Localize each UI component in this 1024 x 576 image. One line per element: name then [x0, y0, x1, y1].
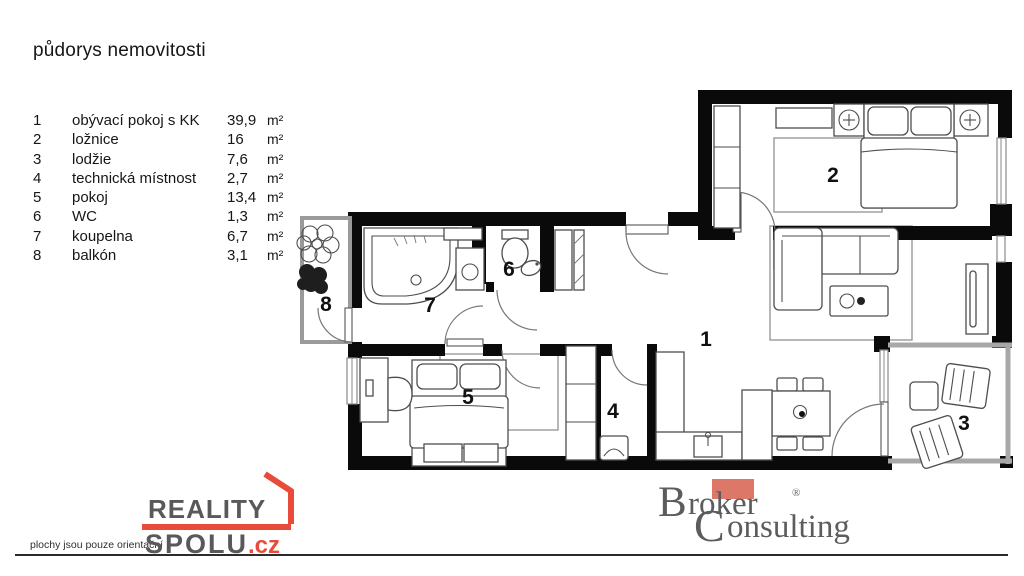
- wardrobe-icon: [566, 346, 596, 460]
- room4-furniture: [600, 436, 628, 460]
- area-unit: m²: [267, 247, 297, 263]
- coffee-table-icon: [830, 286, 888, 316]
- room-name: lodžie: [72, 151, 227, 168]
- dining-table-icon: [772, 378, 830, 450]
- room-label-3: 3: [958, 412, 970, 435]
- room-number: 4: [33, 170, 72, 187]
- room-name: koupelna: [72, 228, 227, 245]
- registered-mark: ®: [792, 487, 800, 499]
- room-label-2: 2: [827, 164, 839, 187]
- room5-door: [502, 350, 540, 388]
- armchair-icon: [941, 363, 990, 409]
- room-area: 2,7: [227, 170, 267, 187]
- bathroom-door: [447, 339, 483, 346]
- room-name: obývací pokoj s KK: [72, 112, 227, 129]
- plant-dark-icon: [297, 264, 328, 294]
- room-name: ložnice: [72, 131, 227, 148]
- entry-door: [626, 225, 668, 234]
- window: [997, 236, 1005, 262]
- room-label-4: 4: [607, 400, 619, 423]
- side-table-icon: [910, 382, 938, 410]
- room-number: 5: [33, 189, 72, 206]
- room-label-6: 6: [503, 258, 515, 281]
- room-number: 2: [33, 131, 72, 148]
- room-area: 13,4: [227, 189, 267, 206]
- room-area: 39,9: [227, 112, 267, 129]
- broker-initial: B: [658, 481, 687, 524]
- tv-stand-icon: [966, 264, 988, 334]
- consulting-initial: C: [694, 503, 725, 549]
- room-area: 16: [227, 131, 267, 148]
- room-number: 6: [33, 208, 72, 225]
- room-number: 8: [33, 247, 72, 264]
- balcony-door: [345, 308, 352, 342]
- room-label-1: 1: [700, 328, 712, 351]
- loggia-furniture: [910, 363, 991, 469]
- room5-furniture: [360, 346, 596, 466]
- area-unit: m²: [267, 189, 297, 205]
- room-name: technická místnost: [72, 170, 227, 187]
- bathroom-fixtures: [364, 228, 484, 304]
- area-unit: m²: [267, 208, 297, 224]
- kitchen-counter-icon: [656, 352, 772, 460]
- room-label-8: 8: [320, 293, 332, 316]
- legend-row: 3 lodžie 7,6 m²: [33, 151, 297, 170]
- washing-machine-icon: [456, 248, 484, 290]
- legend-row: 1 obývací pokoj s KK 39,9 m²: [33, 112, 297, 131]
- room-label-7: 7: [424, 294, 436, 317]
- room4-door: [612, 350, 647, 385]
- broker-consulting-logo: B roker ® C onsulting: [650, 475, 1010, 560]
- loggia-door: [881, 402, 888, 456]
- logo-word-spolu: SPOLU.cz: [145, 529, 280, 560]
- closet-icon: [555, 230, 572, 290]
- area-unit: m²: [267, 112, 297, 128]
- shelf-icon: [444, 228, 482, 240]
- kitchen-island-icon: [742, 390, 772, 460]
- legend-row: 8 balkón 3,1 m²: [33, 247, 297, 266]
- chair-icon: [600, 436, 628, 460]
- room-area: 7,6: [227, 151, 267, 168]
- legend-row: 5 pokoj 13,4 m²: [33, 189, 297, 208]
- logo-word-reality: REALITY: [148, 494, 266, 525]
- room-number: 3: [33, 151, 72, 168]
- desk-chair-icon: [388, 377, 412, 410]
- room-name: balkón: [72, 247, 227, 264]
- bed-icon: [861, 104, 957, 208]
- bed-icon: [410, 360, 508, 466]
- room-area: 3,1: [227, 247, 267, 264]
- area-unit: m²: [267, 170, 297, 186]
- logo-tld: .cz: [248, 532, 280, 559]
- page-title: půdorys nemovitosti: [33, 40, 206, 62]
- wardrobe-icon: [714, 106, 740, 228]
- room-name: pokoj: [72, 189, 227, 206]
- dresser-icon: [776, 108, 832, 128]
- room-label-5: 5: [462, 386, 474, 409]
- area-unit: m²: [267, 228, 297, 244]
- area-unit: m²: [267, 151, 297, 167]
- legend: 1 obývací pokoj s KK 39,9 m² 2 ložnice 1…: [33, 112, 297, 266]
- desk-icon: [360, 358, 412, 422]
- legend-row: 7 koupelna 6,7 m²: [33, 228, 297, 247]
- room-area: 1,3: [227, 208, 267, 225]
- bedroom-furniture: [714, 104, 988, 228]
- room-number: 1: [33, 112, 72, 129]
- legend-row: 6 WC 1,3 m²: [33, 208, 297, 227]
- room-area: 6,7: [227, 228, 267, 245]
- area-unit: m²: [267, 131, 297, 147]
- legend-row: 4 technická místnost 2,7 m²: [33, 170, 297, 189]
- wc-door: [497, 290, 537, 330]
- room-name: WC: [72, 208, 227, 225]
- legend-row: 2 ložnice 16 m²: [33, 131, 297, 150]
- room-number: 7: [33, 228, 72, 245]
- reality-spolu-logo: REALITY SPOLU.cz: [140, 468, 315, 563]
- hall-closets: [555, 230, 584, 290]
- consulting-word: onsulting: [727, 511, 850, 544]
